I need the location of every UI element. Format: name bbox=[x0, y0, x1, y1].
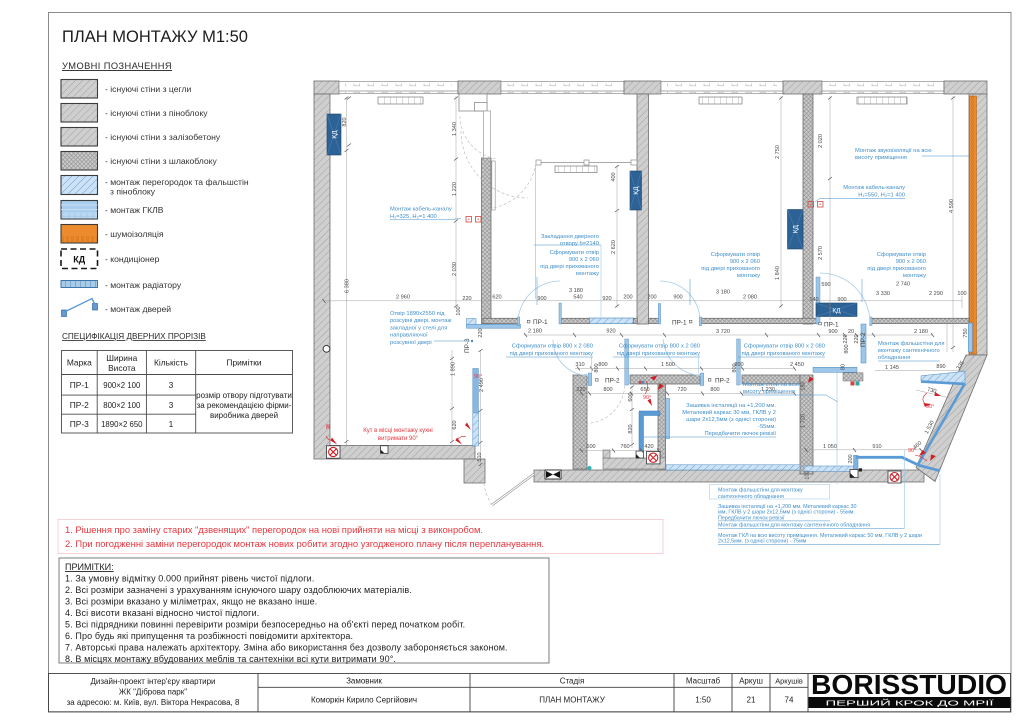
svg-text:виробника дверей: виробника дверей bbox=[210, 411, 278, 420]
svg-text:3. Всі розміри вказано у мілім: 3. Всі розміри вказано у міліметрах, якщ… bbox=[65, 597, 317, 607]
svg-text:закладної у стелі для: закладної у стелі для bbox=[390, 325, 447, 331]
svg-text:під двері прихованого: під двері прихованого bbox=[867, 266, 926, 272]
svg-text:620: 620 bbox=[492, 295, 501, 301]
svg-text:2. Всі розміри зазначені з ура: 2. Всі розміри зазначені з урахуванням і… bbox=[65, 585, 412, 595]
svg-text:2. При погодженні заміни перег: 2. При погодженні заміни перегородок мон… bbox=[65, 538, 544, 549]
svg-text:Монтаж фальшстіни для монтажу: Монтаж фальшстіни для монтажу bbox=[718, 488, 803, 494]
svg-text:Стадія: Стадія bbox=[560, 677, 585, 686]
svg-text:отвору h=2140: отвору h=2140 bbox=[560, 241, 599, 247]
svg-text:ПР-1: ПР-1 bbox=[533, 319, 548, 326]
svg-text:Зашивка інсталяції на +1,200 м: Зашивка інсталяції на +1,200 мм. bbox=[686, 403, 776, 409]
svg-text:КД: КД bbox=[832, 308, 841, 315]
svg-text:90°: 90° bbox=[474, 374, 482, 380]
svg-text:750: 750 bbox=[963, 328, 969, 337]
svg-text:Монтаж фальшстіни для монтажу: Монтаж фальшстіни для монтажу сантехнічн… bbox=[718, 523, 870, 529]
svg-text:540: 540 bbox=[573, 295, 582, 301]
svg-text:200: 200 bbox=[647, 295, 656, 301]
svg-text:900 x 2 060: 900 x 2 060 bbox=[569, 257, 599, 263]
svg-text:Коморкін Кирило Сергійович: Коморкін Кирило Сергійович bbox=[311, 696, 417, 705]
svg-text:2 180: 2 180 bbox=[914, 329, 928, 335]
svg-text:Монтаж кабель-каналу: Монтаж кабель-каналу bbox=[843, 185, 905, 191]
svg-text:направляючої: направляючої bbox=[390, 333, 428, 339]
svg-text:Дизайн-проект інтер'єру кварти: Дизайн-проект інтер'єру квартири bbox=[90, 677, 215, 686]
svg-text:3: 3 bbox=[169, 400, 174, 410]
svg-text:Аркушів: Аркушів bbox=[775, 677, 803, 686]
svg-text:220: 220 bbox=[843, 334, 849, 343]
svg-text:820: 820 bbox=[342, 117, 348, 126]
svg-text:Сформувати отвір: Сформувати отвір bbox=[550, 250, 599, 256]
svg-text:100: 100 bbox=[957, 291, 966, 297]
svg-text:ПР-1: ПР-1 bbox=[70, 380, 89, 390]
svg-text:1 720: 1 720 bbox=[801, 414, 807, 428]
svg-text:ПР-2: ПР-2 bbox=[860, 332, 867, 347]
svg-text:за рекомендацією фірми-: за рекомендацією фірми- bbox=[197, 401, 292, 410]
svg-text:Примітки: Примітки bbox=[226, 358, 261, 368]
svg-text:під двері прихованого монтажу: під двері прихованого монтажу bbox=[617, 351, 700, 357]
svg-text:5. Всі підрядники повинні пере: 5. Всі підрядники повинні перевірити роз… bbox=[65, 620, 465, 630]
svg-text:600: 600 bbox=[628, 392, 634, 401]
svg-text:- існуючі стіни з піноблоку: - існуючі стіни з піноблоку bbox=[105, 108, 208, 118]
svg-text:ЖК "Діброва парк": ЖК "Діброва парк" bbox=[119, 688, 187, 697]
svg-text:2 620: 2 620 bbox=[611, 240, 617, 254]
svg-text:Сформувати отвір: Сформувати отвір bbox=[877, 252, 926, 258]
svg-text:400: 400 bbox=[611, 172, 617, 181]
svg-text:Отвір 1890х2550 під: Отвір 1890х2550 під bbox=[390, 311, 445, 317]
svg-text:2 180: 2 180 bbox=[528, 329, 542, 335]
svg-text:ПР-1: ПР-1 bbox=[672, 319, 687, 326]
svg-text:Кут в місці монтажу кухні: Кут в місці монтажу кухні bbox=[363, 428, 433, 434]
svg-text:КД: КД bbox=[332, 130, 339, 139]
svg-text:- існуючі стіни з залізобетону: - існуючі стіни з залізобетону bbox=[105, 132, 221, 142]
svg-text:Замовник: Замовник bbox=[346, 677, 382, 686]
svg-text:монтажу сантехнічного: монтажу сантехнічного bbox=[878, 348, 940, 354]
svg-text:під двері прихованого монтажу: під двері прихованого монтажу bbox=[510, 351, 593, 357]
svg-text:- монтаж радіатору: - монтаж радіатору bbox=[105, 280, 182, 290]
svg-text:800×2 100: 800×2 100 bbox=[103, 401, 141, 410]
svg-text:ПР-2: ПР-2 bbox=[715, 378, 730, 385]
svg-text:розмір отвору підготувати: розмір отвору підготувати bbox=[196, 391, 292, 400]
svg-text:Сформувати отвір: Сформувати отвір bbox=[711, 252, 760, 258]
svg-text:1 050: 1 050 bbox=[823, 444, 837, 450]
svg-text:200: 200 bbox=[623, 295, 632, 301]
svg-text:- шумоізоляція: - шумоізоляція bbox=[105, 229, 164, 239]
svg-text:Передбачити лючок ревізії: Передбачити лючок ревізії bbox=[718, 515, 785, 521]
svg-text:1 220: 1 220 bbox=[452, 182, 458, 196]
svg-text:BORISSTUDIO: BORISSTUDIO bbox=[811, 669, 1007, 700]
svg-text:ПР-3: ПР-3 bbox=[464, 338, 471, 353]
svg-text:420: 420 bbox=[644, 444, 653, 450]
svg-text:1 890: 1 890 bbox=[451, 362, 457, 376]
svg-text:800: 800 bbox=[603, 387, 612, 393]
svg-text:900 x 2 060: 900 x 2 060 bbox=[896, 259, 926, 265]
svg-text:100: 100 bbox=[805, 470, 811, 479]
svg-text:900 x 2 060: 900 x 2 060 bbox=[730, 259, 760, 265]
svg-text:910: 910 bbox=[872, 444, 881, 450]
svg-text:УМОВНІ ПОЗНАЧЕННЯ: УМОВНІ ПОЗНАЧЕННЯ bbox=[62, 61, 172, 71]
svg-text:Монтаж фальшстіни для: Монтаж фальшстіни для bbox=[878, 341, 944, 347]
svg-text:90°: 90° bbox=[908, 448, 916, 454]
svg-text:монтажу: монтажу bbox=[576, 271, 599, 277]
svg-text:4. Всі висоти вказані відносно: 4. Всі висоти вказані відносно чистої пі… bbox=[65, 608, 259, 618]
svg-text:80: 80 bbox=[841, 364, 847, 370]
svg-text:21: 21 bbox=[747, 696, 756, 705]
svg-text:висоту приміщення: висоту приміщення bbox=[743, 389, 795, 395]
svg-text:ПР-2: ПР-2 bbox=[70, 400, 89, 410]
svg-text:4 590: 4 590 bbox=[949, 199, 955, 213]
svg-text:2 290: 2 290 bbox=[929, 291, 943, 297]
svg-text:ПР-3: ПР-3 bbox=[70, 419, 89, 429]
svg-text:900: 900 bbox=[837, 297, 846, 303]
svg-text:R: R bbox=[326, 425, 331, 431]
svg-text:3 330: 3 330 bbox=[876, 291, 890, 297]
svg-text:монтажу: монтажу bbox=[903, 273, 926, 279]
svg-text:Масштаб: Масштаб bbox=[686, 677, 721, 686]
svg-text:2х12,5мм. (з однієї сторони) -: 2х12,5мм. (з однієї сторони) - 75мм bbox=[718, 539, 807, 545]
svg-text:1:50: 1:50 bbox=[695, 696, 711, 705]
svg-text:720: 720 bbox=[677, 387, 686, 393]
svg-text:Сформувати отвір 800 x 2 080: Сформувати отвір 800 x 2 080 bbox=[619, 344, 700, 350]
svg-text:590: 590 bbox=[821, 282, 830, 288]
svg-text:H₁=550, H₂=1 400: H₁=550, H₂=1 400 bbox=[858, 193, 905, 199]
svg-text:КД: КД bbox=[633, 186, 640, 195]
svg-text:620: 620 bbox=[452, 420, 458, 429]
svg-text:1 840: 1 840 bbox=[775, 266, 781, 280]
svg-text:800: 800 bbox=[844, 344, 850, 353]
svg-text:під двері прихованого: під двері прихованого bbox=[701, 266, 760, 272]
svg-text:Ширина: Ширина bbox=[106, 353, 137, 363]
svg-text:100: 100 bbox=[456, 306, 462, 315]
svg-text:180: 180 bbox=[801, 381, 807, 390]
svg-text:Кількість: Кількість bbox=[154, 358, 189, 368]
svg-text:6. Про будь які припущення та: 6. Про будь які припущення та розбіжност… bbox=[65, 631, 353, 641]
svg-text:2 750: 2 750 bbox=[775, 145, 781, 159]
svg-text:1. Рішення про заміну старих ": 1. Рішення про заміну старих "дзвенящих"… bbox=[65, 524, 483, 535]
svg-text:- монтаж ГКЛВ: - монтаж ГКЛВ bbox=[105, 205, 164, 215]
svg-text:H₁=325, H₂=1 400: H₁=325, H₂=1 400 bbox=[390, 214, 437, 220]
svg-text:1890×2 650: 1890×2 650 bbox=[101, 420, 143, 429]
svg-text:2 740: 2 740 bbox=[896, 282, 910, 288]
svg-text:890: 890 bbox=[936, 364, 945, 370]
svg-text:2 080: 2 080 bbox=[743, 295, 757, 301]
svg-text:6 380: 6 380 bbox=[345, 279, 351, 293]
svg-text:760: 760 bbox=[620, 444, 629, 450]
svg-text:1 145: 1 145 bbox=[885, 365, 899, 371]
svg-text:- існуючі стіни з шлакоблоку: - існуючі стіни з шлакоблоку bbox=[105, 156, 218, 166]
svg-text:ПЛАН МОНТАЖУ М1:50: ПЛАН МОНТАЖУ М1:50 bbox=[62, 28, 248, 46]
svg-text:висоту приміщення: висоту приміщення bbox=[855, 155, 907, 161]
svg-text:7. Авторські права належать ар: 7. Авторські права належать архітектору.… bbox=[65, 643, 508, 653]
svg-text:2 570: 2 570 bbox=[818, 246, 824, 260]
svg-text:510: 510 bbox=[477, 452, 483, 461]
svg-text:обладнання: обладнання bbox=[878, 355, 910, 361]
svg-text:1 500: 1 500 bbox=[661, 362, 675, 368]
svg-text:2 030: 2 030 bbox=[452, 262, 458, 276]
svg-text:Висота: Висота bbox=[108, 363, 136, 373]
svg-text:ПЛАН МОНТАЖУ: ПЛАН МОНТАЖУ bbox=[539, 696, 606, 705]
svg-text:920: 920 bbox=[602, 296, 611, 302]
svg-text:900: 900 bbox=[673, 295, 682, 301]
svg-text:Металевий каркас 30 мм, ГКЛВ у: Металевий каркас 30 мм, ГКЛВ у 2 bbox=[682, 409, 776, 416]
svg-text:розсувні двері, монтаж: розсувні двері, монтаж bbox=[390, 318, 452, 324]
svg-text:2 020: 2 020 bbox=[818, 134, 824, 148]
svg-text:розсувної двері: розсувної двері bbox=[390, 340, 432, 346]
svg-text:3 180: 3 180 bbox=[716, 290, 730, 296]
svg-text:2 490: 2 490 bbox=[479, 378, 485, 392]
svg-text:820: 820 bbox=[628, 424, 634, 433]
svg-text:Сформувати отвір 800 x 2 080: Сформувати отвір 800 x 2 080 bbox=[744, 344, 825, 350]
svg-text:ПР-2: ПР-2 bbox=[605, 378, 620, 385]
svg-text:шари 2х12,5мм (з однієї сторон: шари 2х12,5мм (з однієї сторони) bbox=[686, 417, 776, 423]
svg-text:500: 500 bbox=[586, 444, 595, 450]
svg-text:310: 310 bbox=[575, 362, 584, 368]
svg-text:8. В місцях монтажу вбудованих: 8. В місцях монтажу вбудованих меблів та… bbox=[65, 654, 396, 664]
svg-text:- монтаж дверей: - монтаж дверей bbox=[105, 304, 171, 314]
svg-text:ПРИМІТКИ:: ПРИМІТКИ: bbox=[65, 562, 114, 572]
svg-text:під двері прихованого: під двері прихованого bbox=[540, 264, 599, 270]
svg-text:КД: КД bbox=[793, 225, 800, 234]
svg-text:900: 900 bbox=[537, 296, 546, 302]
svg-text:Закладання дверного: Закладання дверного bbox=[541, 234, 599, 240]
svg-text:800: 800 bbox=[732, 363, 738, 372]
svg-text:220: 220 bbox=[478, 328, 484, 337]
svg-text:3: 3 bbox=[169, 380, 174, 390]
svg-text:з піноблоку: з піноблоку bbox=[110, 187, 156, 197]
svg-text:74: 74 bbox=[785, 696, 794, 705]
svg-text:Марка: Марка bbox=[67, 358, 92, 368]
svg-text:650: 650 bbox=[640, 387, 649, 393]
svg-text:140: 140 bbox=[809, 297, 818, 303]
svg-text:- монтаж перегородок та фальшс: - монтаж перегородок та фальшстін bbox=[105, 177, 249, 187]
svg-text:за адресою: м. Київ, вул. Вікт: за адресою: м. Київ, вул. Віктора Некрас… bbox=[67, 698, 240, 707]
svg-text:1: 1 bbox=[169, 419, 174, 429]
svg-text:Монтаж стіни на всю: Монтаж стіни на всю bbox=[743, 382, 799, 388]
svg-text:220: 220 bbox=[462, 296, 471, 302]
svg-text:КД: КД bbox=[73, 255, 85, 265]
svg-text:сантехнічного обладнання: сантехнічного обладнання bbox=[718, 494, 784, 500]
svg-text:ПР-1: ПР-1 bbox=[824, 322, 839, 329]
svg-text:800: 800 bbox=[594, 363, 600, 372]
svg-text:монтажу: монтажу bbox=[737, 273, 760, 279]
svg-text:3 720: 3 720 bbox=[716, 329, 730, 335]
svg-text:- кондиціонер: - кондиціонер bbox=[105, 254, 160, 264]
svg-text:1 340: 1 340 bbox=[452, 122, 458, 136]
svg-text:СПЕЦИФІКАЦІЯ ДВЕРНИХ ПРОРІЗІВ: СПЕЦИФІКАЦІЯ ДВЕРНИХ ПРОРІЗІВ bbox=[62, 332, 206, 341]
svg-text:витримати 90°: витримати 90° bbox=[378, 436, 419, 442]
svg-text:Монтаж звукоізоляції на всю: Монтаж звукоізоляції на всю bbox=[855, 148, 932, 154]
svg-text:900: 900 bbox=[828, 329, 837, 335]
svg-text:- існуючі стіни з цегли: - існуючі стіни з цегли bbox=[105, 84, 191, 94]
svg-text:20: 20 bbox=[848, 329, 854, 335]
svg-text:2 450: 2 450 bbox=[790, 362, 804, 368]
svg-text:-55мм.: -55мм. bbox=[758, 424, 776, 430]
svg-text:800: 800 bbox=[710, 387, 719, 393]
svg-text:3 180: 3 180 bbox=[569, 288, 583, 294]
svg-text:ПЕРШИЙ КРОК ДО МРІЇ: ПЕРШИЙ КРОК ДО МРІЇ bbox=[826, 699, 994, 708]
svg-text:Аркуш: Аркуш bbox=[739, 677, 763, 686]
svg-text:900×2 100: 900×2 100 bbox=[103, 381, 141, 390]
svg-text:220: 220 bbox=[576, 387, 585, 393]
svg-text:1. За умовну відмітку 0.000 пр: 1. За умовну відмітку 0.000 прийнят ріве… bbox=[65, 574, 314, 584]
svg-text:під двері прихованого монтажу: під двері прихованого монтажу bbox=[742, 351, 825, 357]
svg-text:Сформувати отвір 800 x 2 080: Сформувати отвір 800 x 2 080 bbox=[512, 344, 593, 350]
svg-text:Передбачити лючок ревізії: Передбачити лючок ревізії bbox=[704, 431, 776, 437]
svg-text:Монтаж кабель-каналу: Монтаж кабель-каналу bbox=[390, 207, 452, 213]
svg-text:2 960: 2 960 bbox=[396, 295, 410, 301]
svg-text:920: 920 bbox=[606, 329, 615, 335]
svg-text:200: 200 bbox=[848, 454, 854, 463]
